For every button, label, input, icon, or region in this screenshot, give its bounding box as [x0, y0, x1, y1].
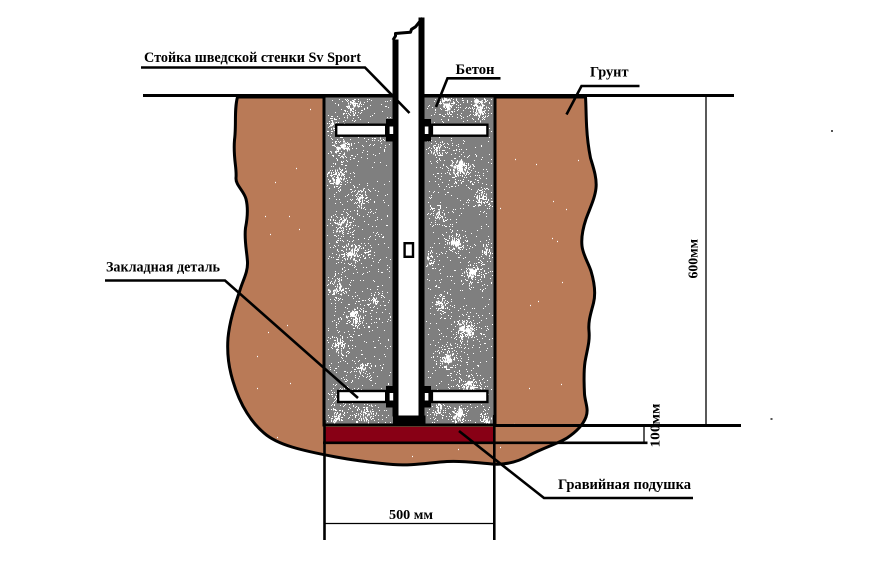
svg-text:Закладная деталь: Закладная деталь [106, 260, 220, 276]
svg-text:500 мм: 500 мм [389, 508, 433, 523]
svg-text:100мм: 100мм [649, 403, 664, 448]
svg-text:Грунт: Грунт [590, 65, 629, 81]
svg-text:Бетон: Бетон [456, 62, 495, 78]
svg-text:600мм: 600мм [687, 239, 702, 279]
svg-text:Стойка шведской стенки Sv Spor: Стойка шведской стенки Sv Sport [144, 50, 361, 66]
svg-text:Гравийная подушка: Гравийная подушка [558, 477, 692, 493]
